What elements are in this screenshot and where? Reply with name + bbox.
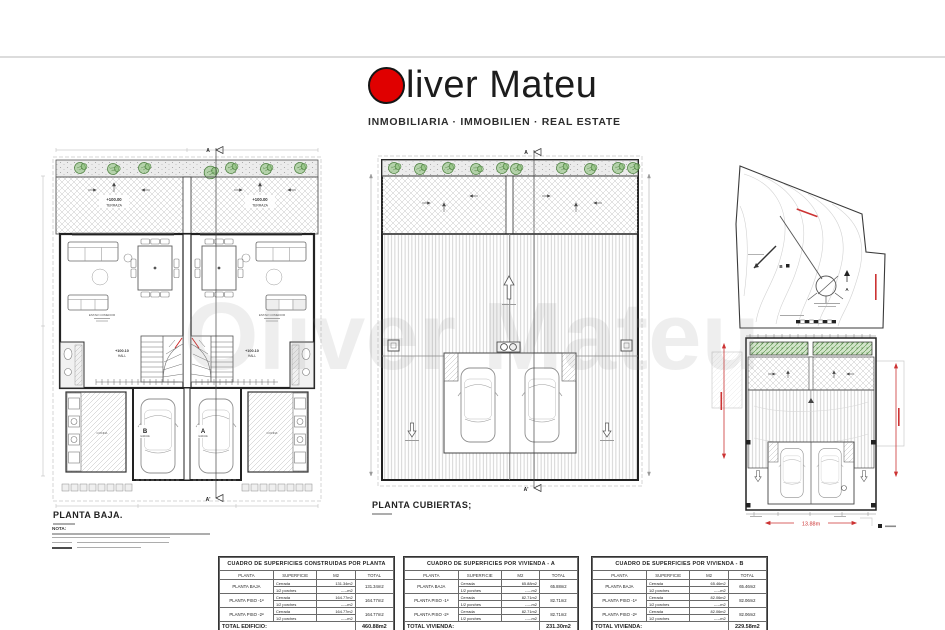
col-header: PLANTA xyxy=(405,571,459,580)
cell-planta: PLANTA BAJA xyxy=(593,580,647,594)
site-legend xyxy=(878,524,896,528)
room-label-kitchen-b: COCINA xyxy=(97,431,108,435)
plan-cubiertas-title: PLANTA CUBIERTAS; xyxy=(372,500,472,510)
cell-superficie: Cerrada xyxy=(646,608,690,615)
living-block: ESTAR COMEDOR ESTAR COMEDOR +100.10 HAL xyxy=(60,233,314,388)
bath-b xyxy=(60,342,84,388)
cell-m2: 82.06m2 xyxy=(690,594,728,601)
room-label-kitchen-a: COCINA xyxy=(267,431,278,435)
dimension-chain xyxy=(780,315,836,323)
section-marker-a: A xyxy=(524,150,528,156)
cell-planta: PLANTA PISO -1ª xyxy=(593,594,647,608)
stair-b xyxy=(141,336,183,382)
col-header: PLANTA xyxy=(220,571,274,580)
cell-superficie: Cerrada xyxy=(273,580,317,587)
total-value: 231.30m2 xyxy=(539,622,577,630)
cell-m2: 164.77m2 xyxy=(317,594,355,601)
cell-total: 65.88m2 xyxy=(539,580,577,594)
garage-label-b: GARAJE xyxy=(140,435,150,438)
garden-strip xyxy=(56,160,318,179)
cell-total: 164.77m2 xyxy=(355,608,393,622)
table-vivienda-a: CUADRO DE SUPERFICIES POR VIVIENDA - A P… xyxy=(403,556,579,630)
note-line-placeholder xyxy=(52,537,170,538)
cell-planta: PLANTA PISO -2ª xyxy=(405,608,459,622)
drawing-sheet: liver Mateu INMOBILIARIA · IMMOBILIEN · … xyxy=(0,0,945,630)
col-header: PLANTA xyxy=(593,571,647,580)
green-planter-a xyxy=(813,342,872,355)
level-label-hall-b: +100.10 xyxy=(115,349,129,353)
cell-m2: -----m2 xyxy=(690,587,728,594)
terrace-band xyxy=(382,176,638,234)
room-label-terrace-b: TERRAZA xyxy=(106,204,123,208)
cell-total: 164.77m2 xyxy=(355,594,393,608)
cell-planta: PLANTA PISO -1ª xyxy=(405,594,459,608)
paver-strip xyxy=(62,484,312,491)
car-a xyxy=(522,368,562,442)
legend-row xyxy=(52,542,217,543)
cell-m2: -----m2 xyxy=(317,615,355,622)
cell-superficie: 1/2 porches xyxy=(273,601,317,608)
room-label-terrace-a: TERRAZA xyxy=(252,204,269,208)
cell-m2: -----m2 xyxy=(501,601,539,608)
total-value: 229.58m2 xyxy=(728,622,766,630)
legend-text-placeholder xyxy=(77,542,169,543)
table-superficies-construidas: CUADRO DE SUPERFICIES CONSTRUIDAS POR PL… xyxy=(218,556,395,630)
cell-total: 82.06m2 xyxy=(728,594,766,608)
brand-header: liver Mateu INMOBILIARIA · IMMOBILIEN · … xyxy=(368,64,621,128)
car-b xyxy=(779,449,805,498)
contour-lines xyxy=(740,174,862,326)
cell-m2: -----m2 xyxy=(690,601,728,608)
col-header: SUPERFICIE xyxy=(458,571,501,580)
cell-m2: -----m2 xyxy=(501,587,539,594)
level-label-terrace-a: +100.00 xyxy=(252,197,268,202)
room-label-hall-b: HALL xyxy=(118,354,126,358)
carport-opening xyxy=(444,342,576,453)
kitchen-a: COCINA xyxy=(248,392,308,472)
col-header: TOTAL xyxy=(728,571,766,580)
cell-planta: PLANTA BAJA xyxy=(405,580,459,594)
legend-key-placeholder xyxy=(52,547,72,549)
cell-superficie: 1/2 porches xyxy=(646,587,690,594)
cell-superficie: 1/2 porches xyxy=(458,615,501,622)
plan-cubiertas-scale-placeholder xyxy=(372,511,392,515)
cell-m2: 82.71m2 xyxy=(501,594,539,601)
carport xyxy=(768,442,854,504)
total-label: TOTAL VIVIENDA: xyxy=(405,622,540,630)
brand-logo-row: liver Mateu xyxy=(368,64,621,107)
cell-m2: 82.71m2 xyxy=(501,608,539,615)
total-label: TOTAL VIVIENDA: xyxy=(593,622,729,630)
cell-total: 131.34m2 xyxy=(355,580,393,594)
cell-total: 82.71m2 xyxy=(539,608,577,622)
survey-marks: B A xyxy=(748,208,877,307)
col-header: SUPERFICIE xyxy=(273,571,317,580)
brand-logo-circle-icon xyxy=(368,67,405,104)
cell-planta: PLANTA PISO -1ª xyxy=(220,594,274,608)
plot-boundary xyxy=(736,166,885,328)
green-planter-b xyxy=(750,342,808,355)
col-header: M2 xyxy=(501,571,539,580)
section-marker-a-prime: A' xyxy=(206,497,211,503)
cell-superficie: 1/2 porches xyxy=(458,601,501,608)
legend-key-placeholder xyxy=(52,542,72,543)
plan-baja-scale-placeholder xyxy=(53,521,75,525)
cell-m2: 164.77m2 xyxy=(317,608,355,615)
room-label-living-a: ESTAR COMEDOR xyxy=(259,313,286,317)
cell-superficie: Cerrada xyxy=(273,608,317,615)
note-line-placeholder xyxy=(52,533,210,534)
cell-superficie: 1/2 porches xyxy=(273,587,317,594)
cell-superficie: 1/2 porches xyxy=(646,601,690,608)
col-header: M2 xyxy=(317,571,355,580)
cell-m2: 82.06m2 xyxy=(690,608,728,615)
site-plan-drawing: B A xyxy=(710,146,910,534)
cell-m2: 65.88m2 xyxy=(501,580,539,587)
stair-a xyxy=(191,336,233,382)
table-vivienda-b: CUADRO DE SUPERFICIES POR VIVIENDA - B P… xyxy=(591,556,768,630)
site-marker-a: A xyxy=(845,287,849,292)
total-label: TOTAL EDIFICIO: xyxy=(220,622,356,630)
bath-a xyxy=(290,342,314,388)
col-header: TOTAL xyxy=(539,571,577,580)
building-footprint xyxy=(746,334,876,517)
cell-m2: 65.46m2 xyxy=(690,580,728,587)
cell-total: 82.71m2 xyxy=(539,594,577,608)
cell-superficie: Cerrada xyxy=(646,594,690,601)
plan-baja-title: PLANTA BAJA. xyxy=(53,510,123,520)
cell-planta: PLANTA PISO -2ª xyxy=(220,608,274,622)
cell-m2: -----m2 xyxy=(317,587,355,594)
col-header: TOTAL xyxy=(355,571,393,580)
level-label-hall-a: +100.10 xyxy=(245,349,259,353)
garage-label-a: GARAJE xyxy=(198,435,208,438)
cell-superficie: 1/2 porches xyxy=(458,587,501,594)
site-width-dimension: 13.88m xyxy=(802,522,821,528)
car-b xyxy=(458,368,498,442)
kitchen-b: COCINA xyxy=(66,392,126,472)
total-value: 460.88m2 xyxy=(355,622,393,630)
legend-text-placeholder xyxy=(77,547,141,548)
cell-m2: 131.34m2 xyxy=(317,580,355,587)
cell-superficie: 1/2 porches xyxy=(646,615,690,622)
cell-superficie: 1/2 porches xyxy=(273,615,317,622)
terrace-band: +100.00 TERRAZA +100.00 TERRAZA xyxy=(56,177,318,234)
section-marker-a-prime: A' xyxy=(524,487,529,493)
cell-m2: -----m2 xyxy=(690,615,728,622)
section-marker-a: A xyxy=(206,148,210,154)
cell-superficie: Cerrada xyxy=(646,580,690,587)
plan-baja-drawing: +100.00 TERRAZA +100.00 TERRAZA xyxy=(38,146,336,512)
brand-tagline: INMOBILIARIA · IMMOBILIEN · REAL ESTATE xyxy=(368,116,621,128)
cell-planta: PLANTA PISO -2ª xyxy=(593,608,647,622)
car-a xyxy=(817,449,843,498)
table-title: CUADRO DE SUPERFICIES POR VIVIENDA - B xyxy=(593,558,767,571)
cell-superficie: Cerrada xyxy=(273,594,317,601)
room-label-living-b: ESTAR COMEDOR xyxy=(89,313,116,317)
level-label-terrace-b: +100.00 xyxy=(106,197,122,202)
col-header: SUPERFICIE xyxy=(646,571,690,580)
plan-cubiertas-drawing: A A' xyxy=(366,148,654,494)
col-header: M2 xyxy=(690,571,728,580)
top-divider-line xyxy=(0,56,945,58)
site-marker-b: B xyxy=(779,264,783,269)
cell-m2: -----m2 xyxy=(317,601,355,608)
table-title: CUADRO DE SUPERFICIES POR VIVIENDA - A xyxy=(405,558,578,571)
room-label-hall-a: HALL xyxy=(248,354,256,358)
brand-name: liver Mateu xyxy=(406,64,597,107)
plan-baja-note: NOTA: xyxy=(52,526,217,549)
cell-total: 82.06m2 xyxy=(728,608,766,622)
cell-superficie: Cerrada xyxy=(458,594,501,601)
cell-planta: PLANTA BAJA xyxy=(220,580,274,594)
table-title: CUADRO DE SUPERFICIES CONSTRUIDAS POR PL… xyxy=(220,558,394,571)
cell-total: 65.46m2 xyxy=(728,580,766,594)
note-title: NOTA: xyxy=(52,526,217,531)
garden-strip xyxy=(382,160,640,177)
legend-row xyxy=(52,547,217,549)
cell-m2: -----m2 xyxy=(501,615,539,622)
cell-superficie: Cerrada xyxy=(458,580,501,587)
cell-superficie: Cerrada xyxy=(458,608,501,615)
